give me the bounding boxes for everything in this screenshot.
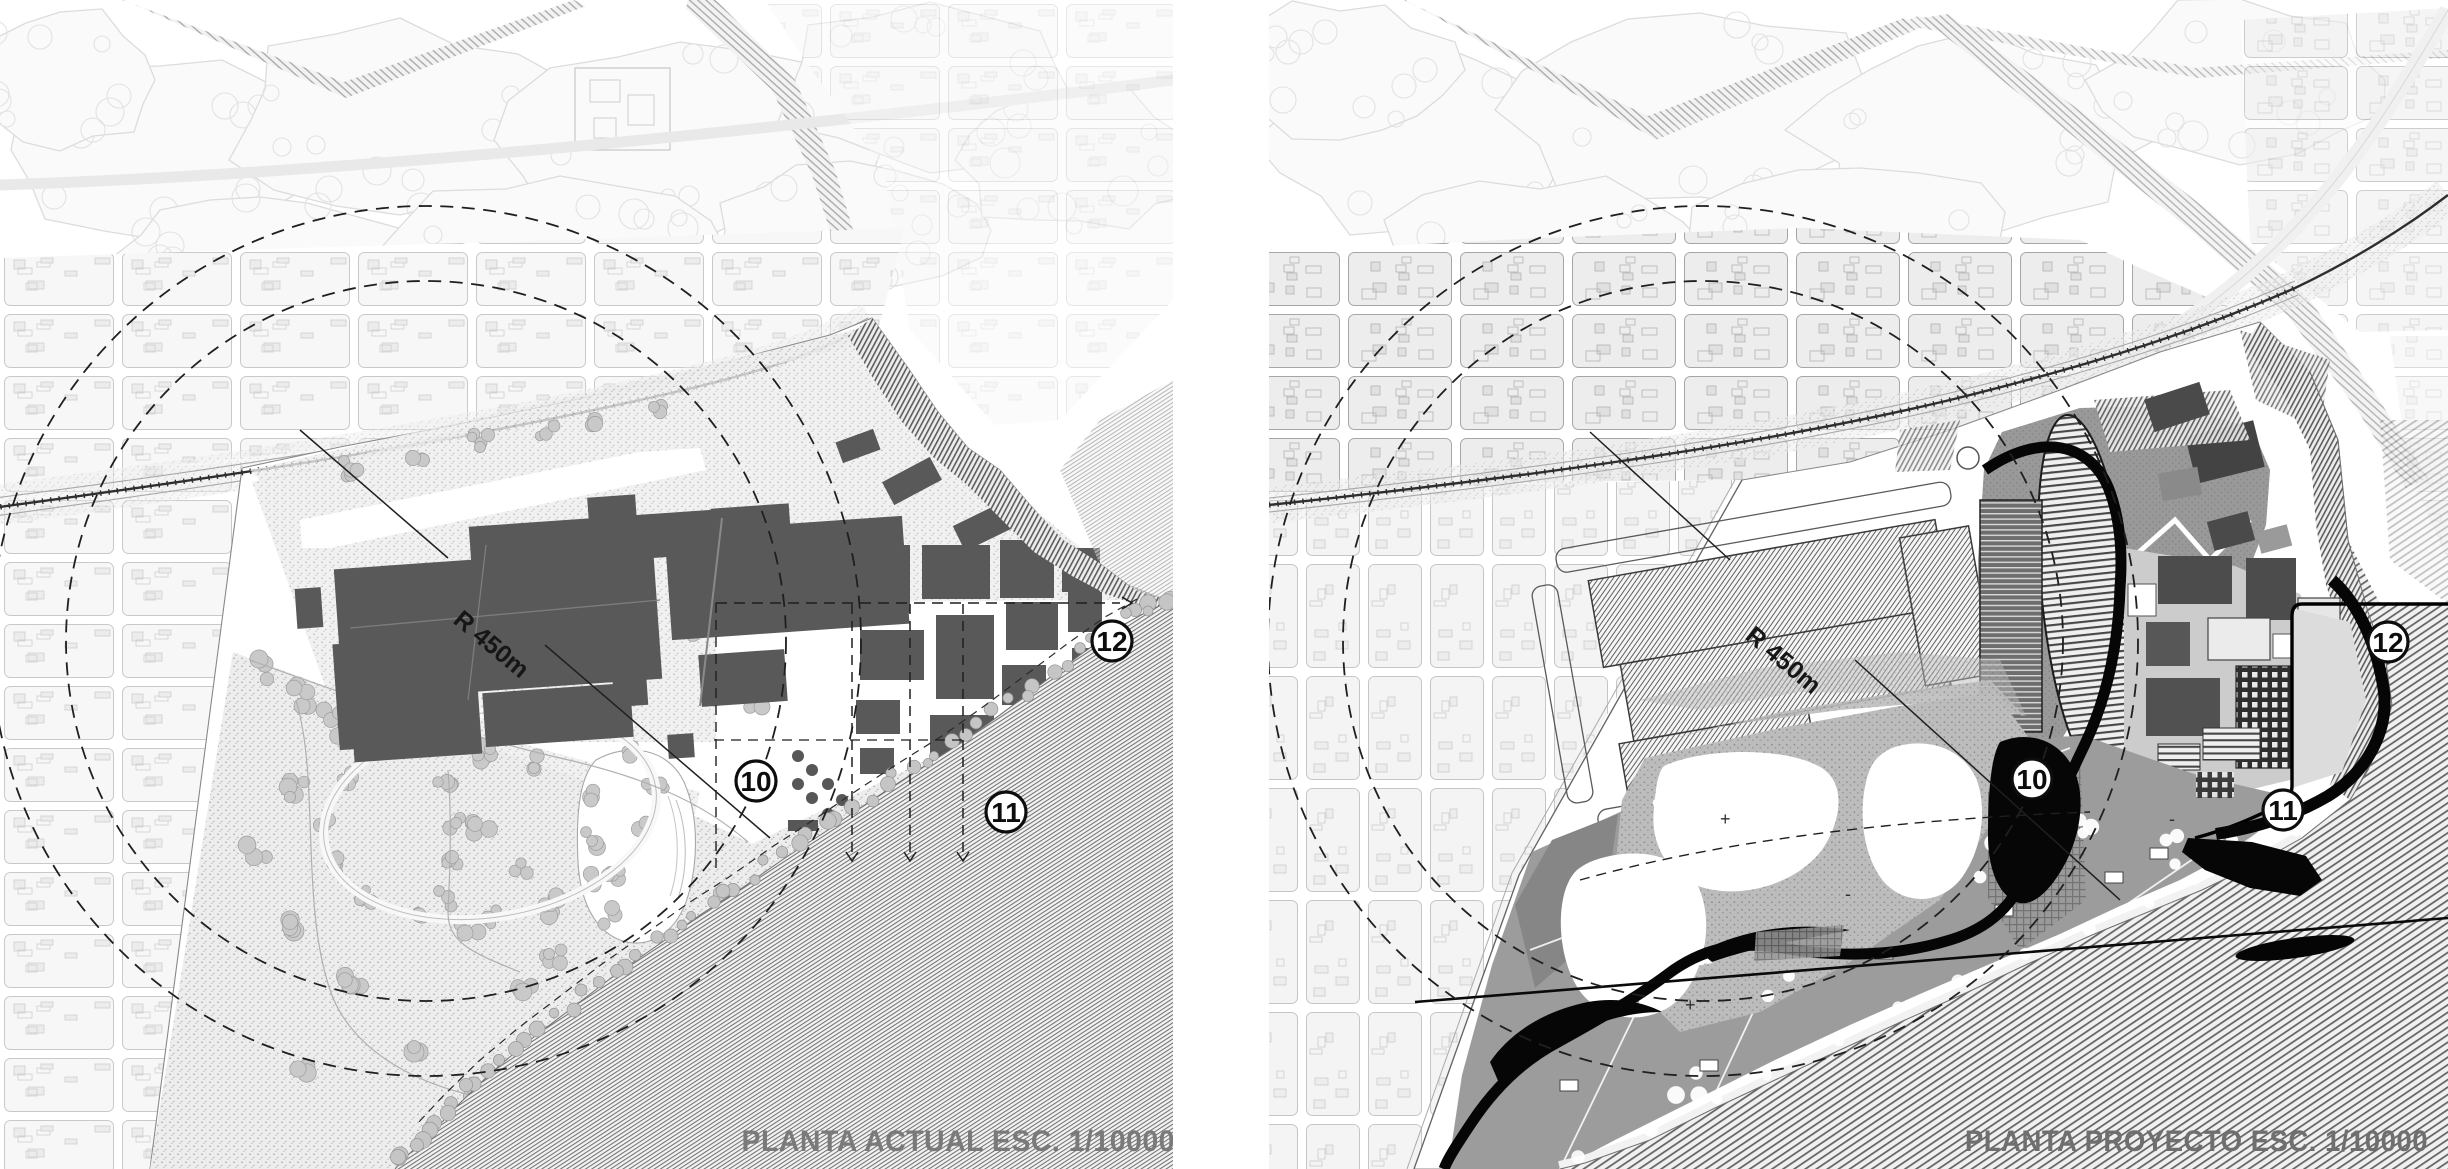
svg-text:-: - bbox=[2169, 809, 2175, 829]
svg-text:10: 10 bbox=[2016, 764, 2047, 795]
svg-text:PLANTA PROYECTO ESC. 1/10000: PLANTA PROYECTO ESC. 1/10000 bbox=[1965, 1125, 2428, 1158]
svg-text:12: 12 bbox=[1096, 626, 1127, 657]
svg-text:PLANTA ACTUAL ESC. 1/10000: PLANTA ACTUAL ESC. 1/10000 bbox=[742, 1125, 1175, 1158]
svg-text:-: - bbox=[1845, 884, 1851, 904]
svg-text:+: + bbox=[1720, 809, 1731, 829]
svg-text:11: 11 bbox=[2268, 795, 2298, 826]
svg-text:10: 10 bbox=[740, 766, 771, 797]
svg-text:+: + bbox=[1685, 995, 1696, 1015]
svg-text:12: 12 bbox=[2372, 627, 2403, 658]
svg-text:11: 11 bbox=[991, 797, 1021, 828]
